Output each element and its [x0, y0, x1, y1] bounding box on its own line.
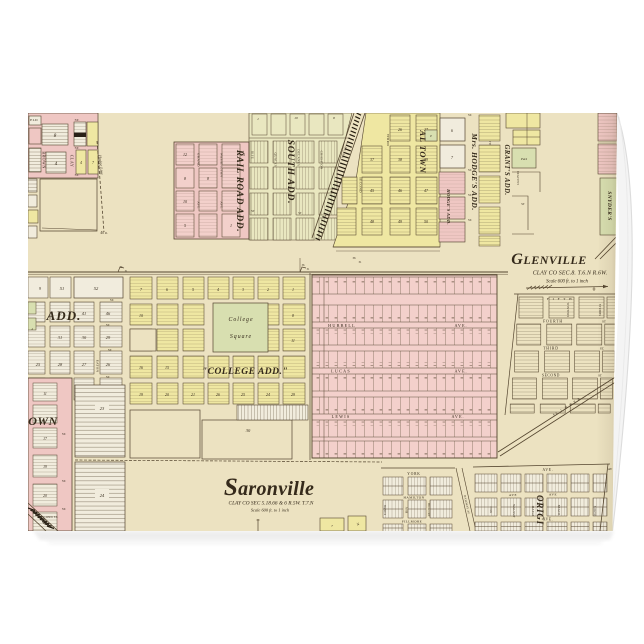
svg-text:5: 5	[184, 223, 186, 228]
svg-text:Saronville: Saronville	[224, 474, 314, 501]
svg-text:Park: Park	[520, 157, 528, 161]
svg-text:ST.: ST.	[62, 479, 66, 483]
svg-text:SECOND: SECOND	[359, 177, 363, 193]
svg-text:1: 1	[230, 223, 232, 228]
svg-text:ST.: ST.	[62, 507, 66, 511]
svg-text:EIGHTH: EIGHTH	[516, 171, 520, 185]
svg-text:36: 36	[353, 256, 357, 260]
svg-text:GRAND: GRAND	[197, 153, 201, 167]
svg-text:26: 26	[216, 392, 220, 397]
svg-text:8: 8	[292, 313, 294, 318]
svg-text:10: 10	[183, 199, 187, 204]
svg-text:GLENVILLE: GLENVILLE	[511, 251, 586, 268]
svg-text:31: 31	[58, 335, 62, 340]
svg-text:15: 15	[165, 365, 169, 370]
svg-text:ST.: ST.	[468, 168, 472, 172]
svg-text:23: 23	[100, 406, 105, 411]
svg-text:CRIGHTON: CRIGHTON	[320, 151, 324, 170]
svg-text:EATON: EATON	[96, 360, 100, 373]
svg-text:LEWIS: LEWIS	[332, 414, 351, 419]
svg-text:ST.: ST.	[110, 298, 114, 302]
svg-text:24: 24	[266, 392, 270, 397]
svg-text:41: 41	[82, 311, 86, 316]
svg-text:AL TOWN: AL TOWN	[418, 129, 428, 173]
svg-text:CLAY CO SEC 5.18.66 & 6 R.5W.: CLAY CO SEC 5.18.66 & 6 R.5W. T.7.N	[229, 501, 314, 507]
svg-text:31: 31	[359, 260, 363, 264]
svg-text:AVE: AVE	[197, 201, 201, 208]
svg-text:49: 49	[398, 219, 402, 224]
svg-text:ST.: ST.	[108, 348, 112, 352]
svg-text:AVE.: AVE.	[542, 468, 553, 472]
svg-text:51: 51	[60, 286, 65, 291]
svg-text:SECOND: SECOND	[542, 374, 560, 378]
svg-text:24: 24	[100, 493, 105, 498]
svg-text:9: 9	[39, 286, 41, 291]
svg-text:HICKORY: HICKORY	[427, 503, 430, 517]
svg-text:QUALEY: QUALEY	[274, 153, 278, 168]
svg-text:AVE.: AVE.	[454, 369, 467, 374]
svg-text:HUBBELL: HUBBELL	[328, 323, 356, 328]
svg-text:College: College	[228, 317, 253, 323]
svg-text:20: 20	[165, 392, 169, 397]
svg-text:HODGE'S ADD.: HODGE'S ADD.	[446, 188, 451, 225]
svg-text:1: 1	[292, 287, 294, 292]
svg-text:48: 48	[370, 219, 374, 224]
svg-text:YORK: YORK	[407, 472, 420, 476]
svg-text:7: 7	[331, 524, 333, 528]
svg-text:RAIL ROAD ADD.: RAIL ROAD ADD.	[235, 149, 245, 232]
svg-text:ST.: ST.	[468, 218, 472, 222]
svg-text:ST: ST	[521, 202, 525, 206]
svg-text:AVE: AVE	[549, 493, 557, 497]
svg-text:"COLLEGE ADD.": "COLLEGE ADD."	[202, 367, 288, 377]
svg-text:F I F T H: F I F T H	[547, 297, 573, 301]
svg-text:Scale 600 ft. to 1 inch: Scale 600 ft. to 1 inch	[546, 280, 588, 285]
svg-text:45: 45	[370, 188, 374, 193]
svg-text:WINTERS: WINTERS	[566, 303, 570, 318]
svg-text:ASH: ASH	[405, 507, 409, 514]
svg-text:ST.: ST.	[468, 113, 472, 117]
svg-text:16: 16	[139, 365, 143, 370]
svg-text:2: 2	[267, 287, 269, 292]
svg-text:ELD: ELD	[30, 118, 38, 122]
svg-text:21: 21	[191, 392, 195, 397]
svg-text:52: 52	[94, 286, 99, 291]
svg-text:38: 38	[398, 157, 402, 162]
svg-text:AVE: AVE	[220, 201, 224, 208]
svg-text:29: 29	[291, 392, 295, 397]
svg-text:8: 8	[184, 176, 186, 181]
svg-text:ST.: ST.	[62, 432, 66, 436]
svg-text:BEACH: BEACH	[557, 505, 561, 516]
svg-text:7: 7	[92, 161, 94, 165]
svg-text:THIRD: THIRD	[386, 134, 390, 147]
svg-text:6: 6	[166, 287, 168, 292]
svg-text:11: 11	[43, 392, 47, 396]
svg-text:AVE.: AVE.	[451, 414, 464, 419]
svg-text:WALNUT: WALNUT	[512, 504, 516, 517]
svg-text:12: 12	[183, 152, 187, 157]
svg-text:ST.: ST.	[106, 375, 110, 379]
svg-text:ADD.: ADD.	[46, 308, 82, 323]
svg-text:19: 19	[43, 465, 47, 469]
svg-text:ST.: ST.	[468, 193, 472, 197]
svg-text:ST.: ST.	[75, 118, 80, 122]
svg-text:ST: ST	[251, 209, 255, 213]
svg-text:10: 10	[139, 313, 143, 318]
svg-text:Square: Square	[230, 334, 252, 340]
svg-text:FILLMORE: FILLMORE	[402, 520, 422, 524]
svg-text:20: 20	[43, 494, 47, 498]
svg-text:40 a.: 40 a.	[100, 231, 107, 235]
svg-text:10: 10	[294, 116, 298, 120]
svg-text:4: 4	[217, 287, 219, 292]
svg-text:WASHINGTON: WASHINGTON	[220, 153, 224, 178]
svg-text:MAPLE: MAPLE	[531, 506, 535, 517]
svg-text:GRANT'S ADD.: GRANT'S ADD.	[503, 144, 510, 195]
svg-text:HAMILTON: HAMILTON	[404, 496, 425, 500]
svg-text:RIFE: RIFE	[251, 151, 255, 159]
svg-text:ST.: ST.	[106, 323, 110, 327]
svg-text:6: 6	[451, 128, 453, 133]
svg-text:CLAY: CLAY	[70, 155, 75, 168]
svg-text:AVE.: AVE.	[454, 323, 467, 328]
svg-text:19: 19	[139, 392, 143, 397]
svg-text:ST.: ST.	[75, 146, 80, 150]
svg-text:8: 8	[333, 116, 335, 120]
svg-text:THIRD: THIRD	[543, 347, 559, 351]
svg-text:BROWN: BROWN	[42, 151, 47, 168]
svg-text:30: 30	[246, 428, 251, 433]
svg-text:P: P	[429, 135, 432, 138]
svg-text:26: 26	[398, 127, 402, 132]
svg-text:Scale 600 ft. to 1 inch: Scale 600 ft. to 1 inch	[251, 508, 290, 513]
svg-text:1: 1	[257, 117, 259, 121]
svg-text:50: 50	[424, 219, 428, 224]
svg-text:SOUTH ADD.: SOUTH ADD.	[285, 140, 295, 205]
svg-text:OWN: OWN	[28, 414, 58, 428]
svg-text:ORIGI: ORIGI	[535, 495, 545, 525]
svg-text:4: 4	[80, 161, 82, 165]
svg-text:AVE: AVE	[509, 493, 517, 497]
svg-text:8: 8	[207, 176, 209, 181]
svg-text:5: 5	[192, 287, 194, 292]
svg-text:ST: ST	[298, 211, 302, 215]
svg-text:3: 3	[242, 287, 244, 292]
svg-text:DELANEY: DELANEY	[297, 149, 301, 167]
svg-text:LUCAS: LUCAS	[331, 369, 351, 374]
svg-text:46: 46	[398, 188, 402, 193]
svg-text:OAK: OAK	[489, 506, 493, 514]
svg-text:11: 11	[291, 338, 295, 343]
svg-text:CLAY CO SEC.8. T.6.N R.6W.: CLAY CO SEC.8. T.6.N R.6W.	[533, 271, 608, 277]
svg-text:FOURTH: FOURTH	[543, 320, 563, 324]
svg-text:25: 25	[241, 392, 245, 397]
svg-text:HANDS: HANDS	[383, 505, 386, 516]
